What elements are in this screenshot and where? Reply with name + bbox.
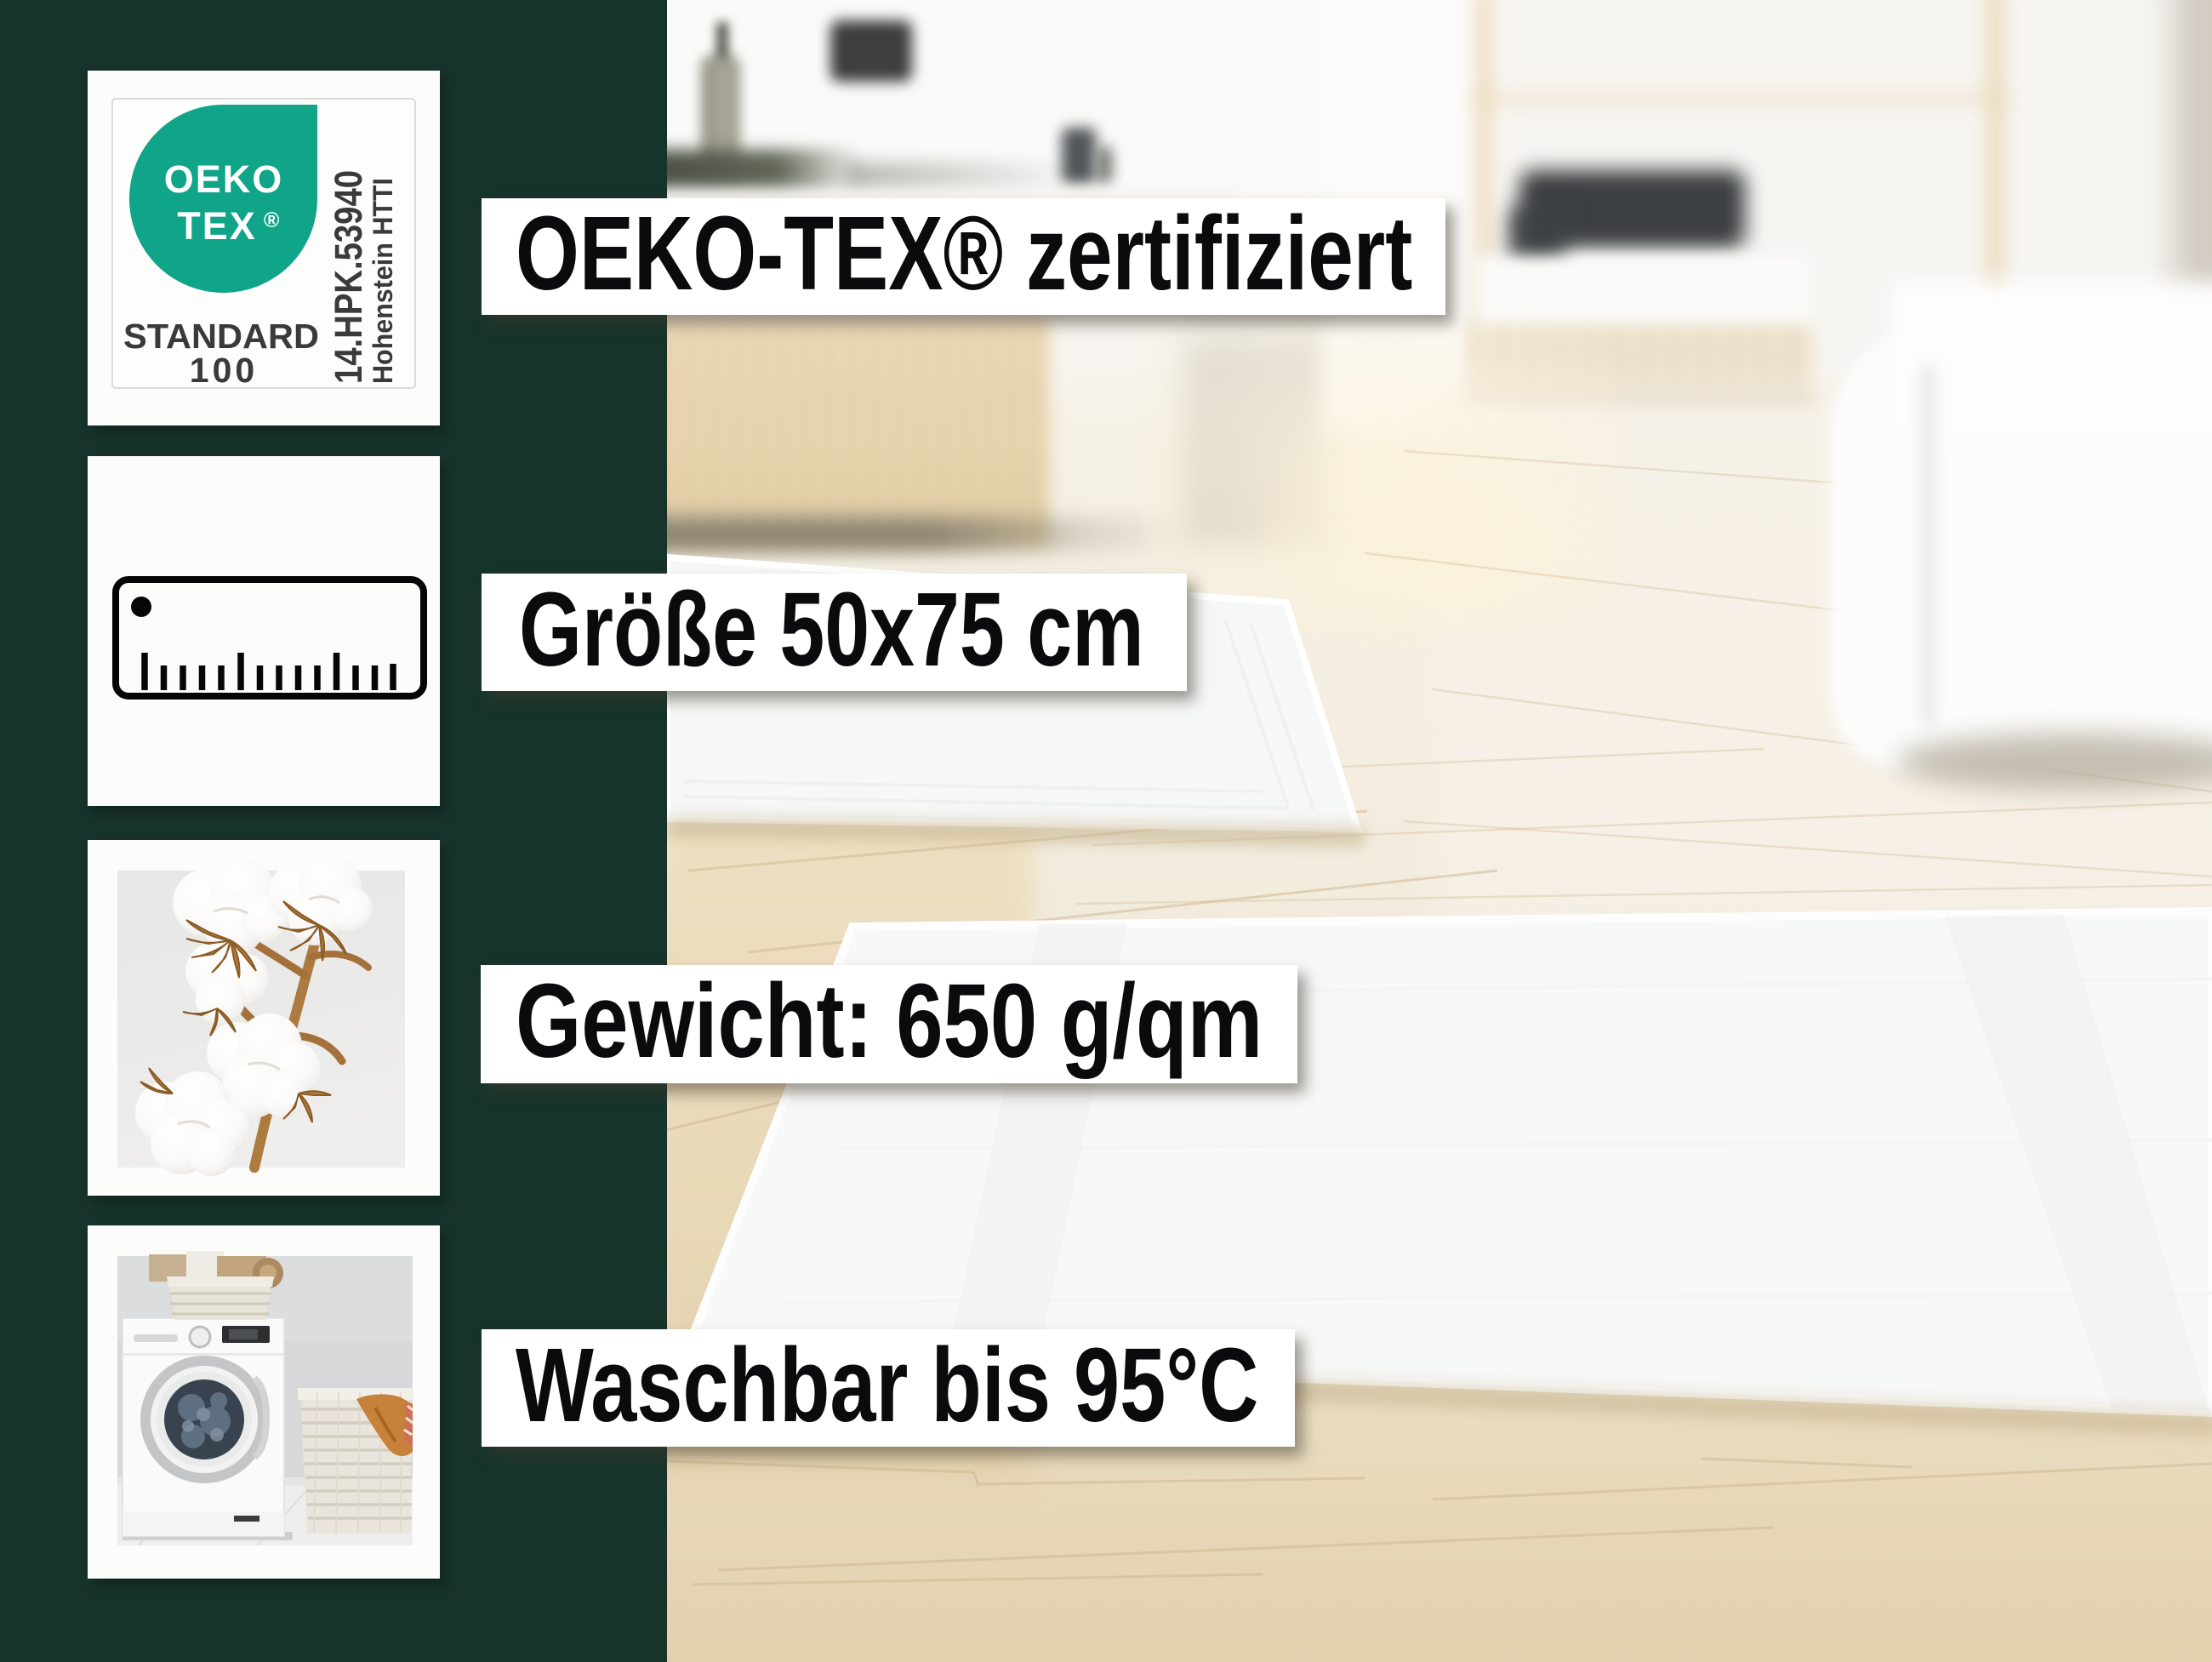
svg-text:®: ® [264, 208, 280, 232]
svg-text:OEKO: OEKO [164, 157, 284, 201]
svg-text:TEX: TEX [177, 204, 257, 248]
svg-text:14.HPK.53940: 14.HPK.53940 [327, 170, 370, 384]
svg-text:Hohenstein HTTI: Hohenstein HTTI [368, 178, 398, 384]
svg-text:100: 100 [190, 351, 258, 390]
